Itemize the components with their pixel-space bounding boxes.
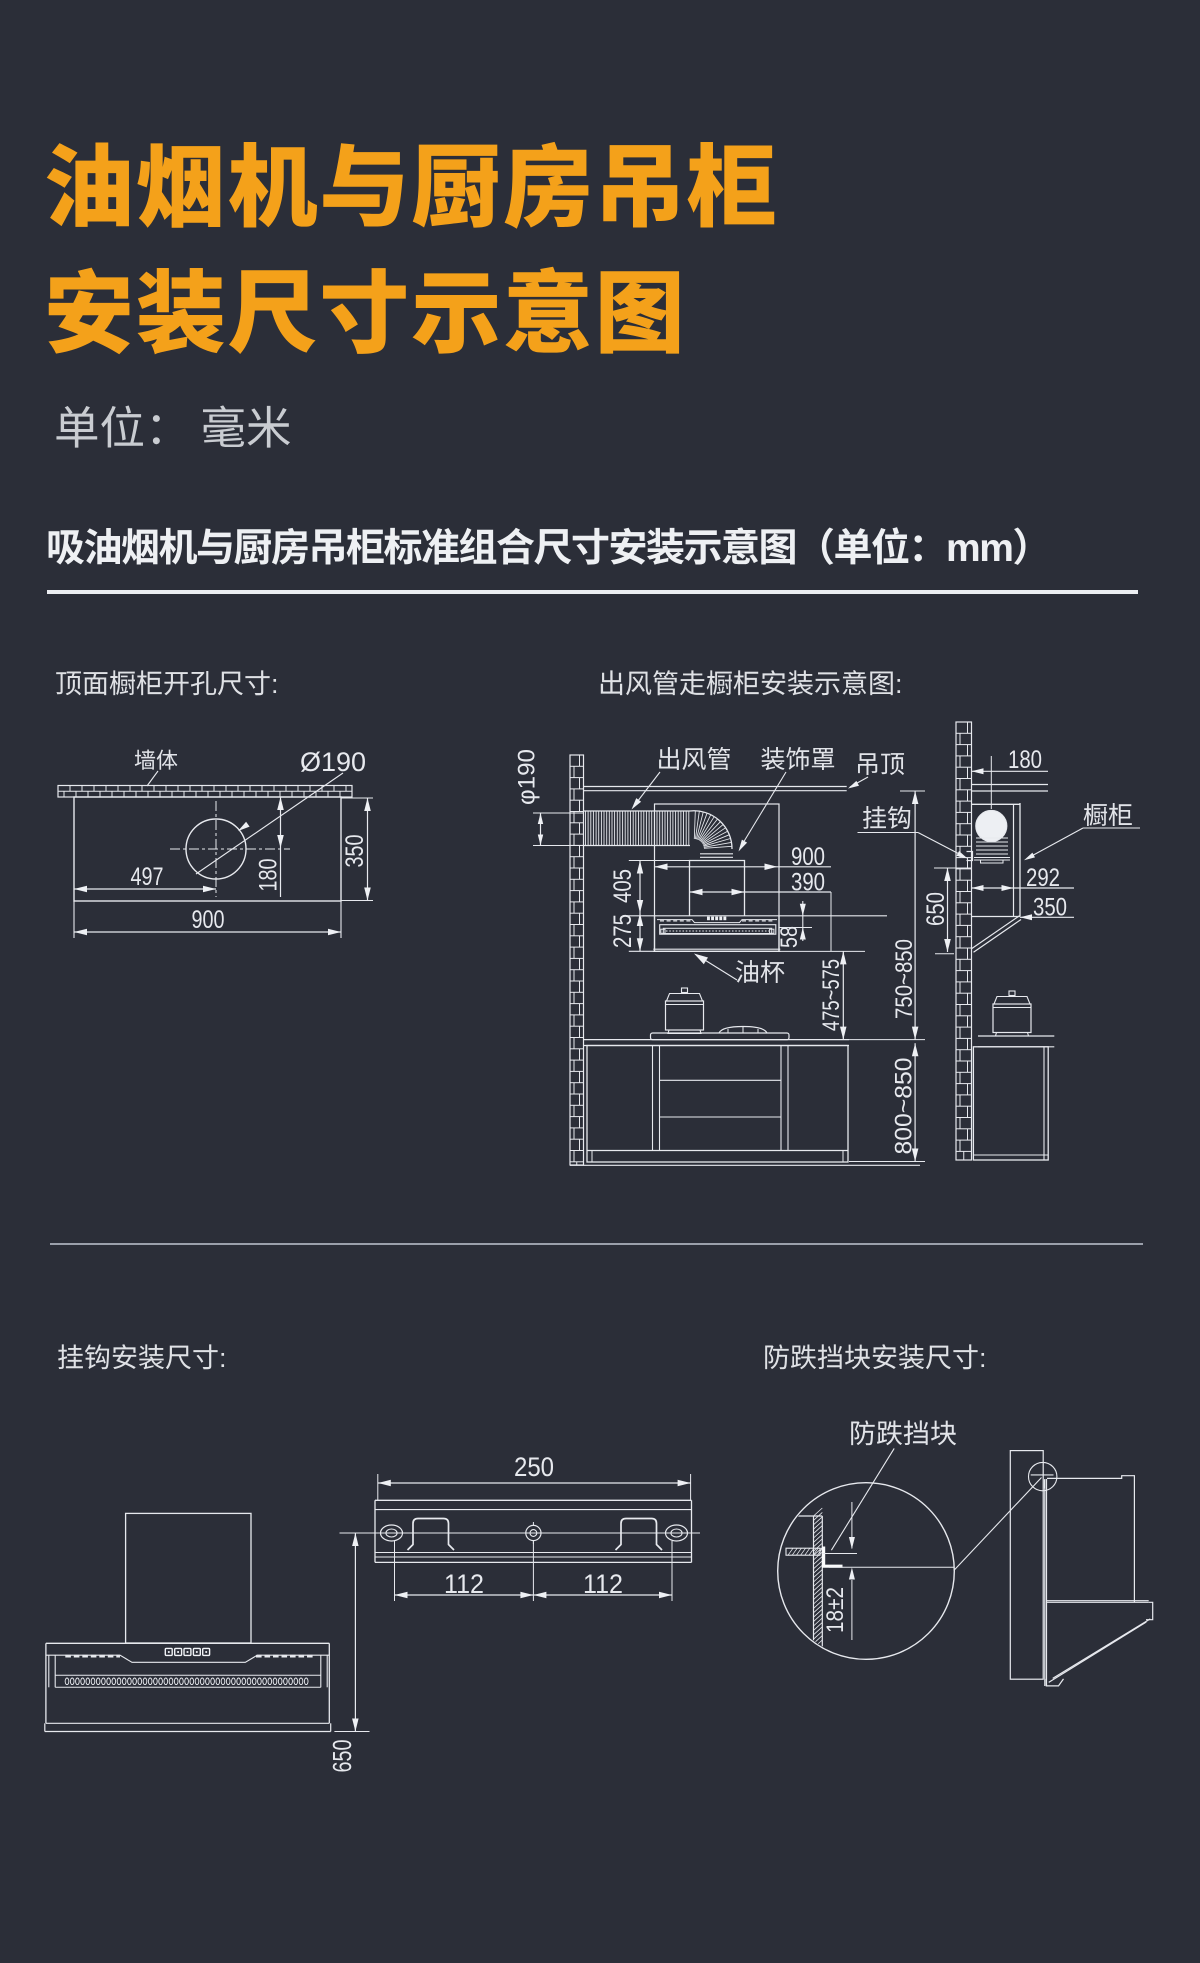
svg-text:750~850: 750~850: [891, 939, 918, 1019]
svg-text:出风管: 出风管: [656, 740, 731, 776]
svg-text:墙体: 墙体: [134, 743, 178, 775]
svg-text:112: 112: [444, 1569, 484, 1599]
svg-text:吊顶: 吊顶: [855, 745, 905, 781]
svg-text:650: 650: [922, 892, 950, 926]
svg-text:800~850: 800~850: [891, 1058, 918, 1155]
svg-text:18±2: 18±2: [822, 1587, 849, 1633]
svg-text:250: 250: [514, 1452, 554, 1482]
svg-text:405: 405: [609, 869, 637, 903]
svg-text:橱柜: 橱柜: [1083, 796, 1133, 832]
svg-text:挂钩: 挂钩: [862, 799, 912, 835]
svg-text:900: 900: [791, 843, 825, 871]
svg-text:475~575: 475~575: [818, 959, 845, 1031]
svg-text:装饰罩: 装饰罩: [760, 740, 835, 776]
svg-text:275: 275: [609, 914, 637, 948]
svg-text:112: 112: [583, 1569, 623, 1599]
svg-text:497: 497: [131, 863, 164, 891]
svg-text:油杯: 油杯: [735, 953, 785, 989]
svg-text:180: 180: [255, 859, 283, 892]
svg-text:900: 900: [192, 906, 225, 934]
svg-text:180: 180: [1008, 746, 1042, 774]
svg-text:350: 350: [341, 835, 369, 868]
svg-text:防跌挡块: 防跌挡块: [849, 1412, 957, 1451]
svg-text:650: 650: [327, 1740, 357, 1773]
svg-text:292: 292: [1026, 864, 1060, 892]
svg-text:Ø190: Ø190: [300, 747, 366, 777]
svg-text:58: 58: [776, 926, 803, 948]
svg-text:φ190: φ190: [514, 749, 541, 805]
svg-text:350: 350: [1033, 894, 1067, 922]
svg-text:390: 390: [791, 869, 825, 897]
